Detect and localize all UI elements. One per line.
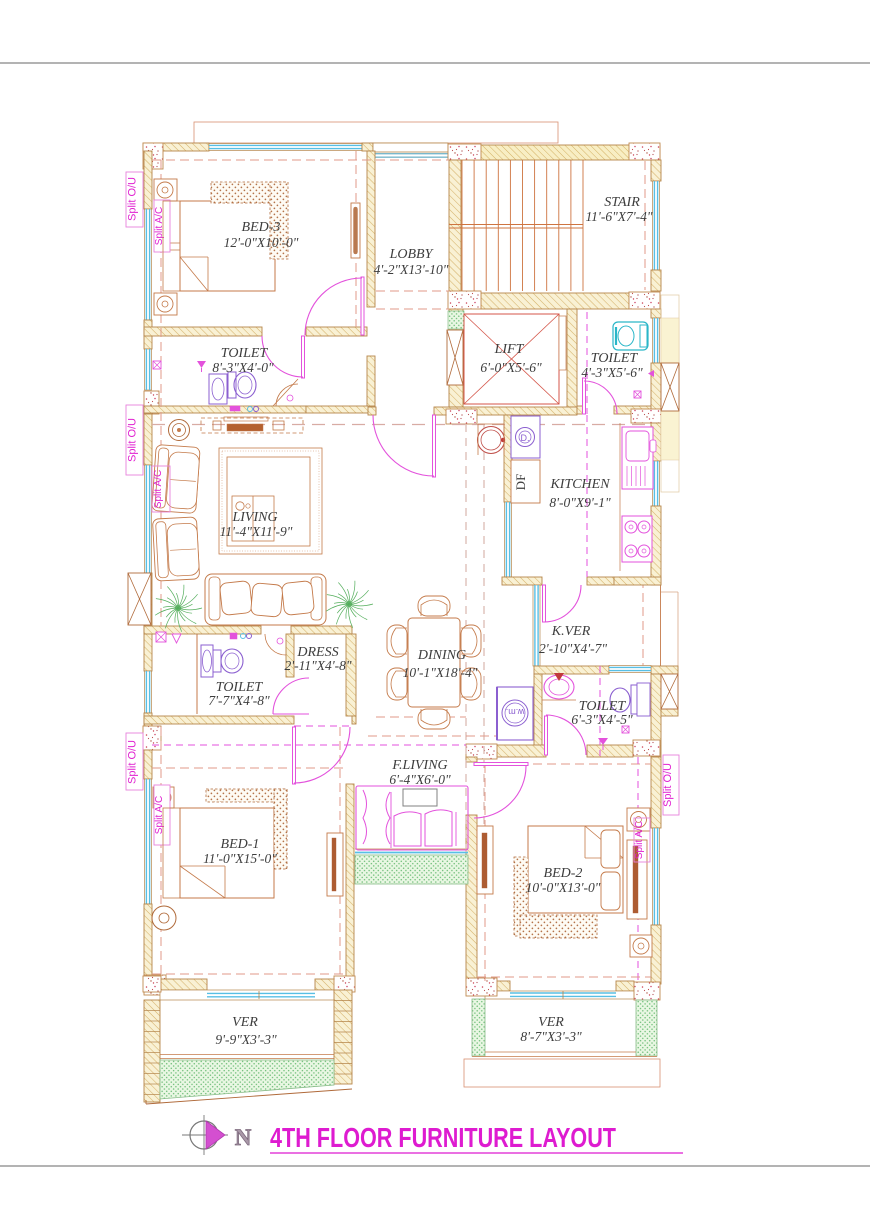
svg-text:8'-0"X9'-1": 8'-0"X9'-1" — [549, 495, 611, 510]
svg-text:Split O/U: Split O/U — [662, 763, 674, 807]
svg-text:LIVING: LIVING — [231, 510, 277, 525]
svg-text:11'-0"X15'-0": 11'-0"X15'-0" — [203, 851, 277, 866]
svg-text:11'-4"X11'-9": 11'-4"X11'-9" — [220, 524, 293, 539]
svg-text:VER: VER — [538, 1015, 564, 1030]
svg-text:DINING: DINING — [417, 648, 466, 663]
svg-text:2'-11"X4'-8": 2'-11"X4'-8" — [284, 658, 351, 673]
svg-text:LIFT: LIFT — [494, 342, 525, 357]
svg-text:6'-3"X4'-5": 6'-3"X4'-5" — [571, 712, 633, 727]
svg-text:Split O/U: Split O/U — [127, 177, 139, 221]
svg-text:12'-0"X10'-0": 12'-0"X10'-0" — [224, 235, 299, 250]
svg-text:Split O/U: Split O/U — [127, 740, 139, 784]
svg-text:Split A/C: Split A/C — [634, 821, 645, 859]
svg-text:11'-6"X7'-4": 11'-6"X7'-4" — [585, 209, 652, 224]
svg-text:4'-3"X5'-6": 4'-3"X5'-6" — [581, 365, 643, 380]
svg-text:2'-10"X4'-7": 2'-10"X4'-7" — [539, 641, 607, 656]
svg-text:8'-7"X3'-3": 8'-7"X3'-3" — [520, 1029, 582, 1044]
svg-text:VER: VER — [232, 1015, 258, 1030]
svg-text:6'-4"X6'-0": 6'-4"X6'-0" — [389, 772, 451, 787]
svg-text:F.LIVING: F.LIVING — [391, 758, 447, 773]
svg-text:BED-1: BED-1 — [221, 837, 260, 852]
svg-text:STAIR: STAIR — [604, 195, 640, 210]
svg-text:w.m.: w.m. — [506, 707, 526, 717]
svg-text:TOILET: TOILET — [221, 346, 269, 361]
svg-text:7'-7"X4'-8": 7'-7"X4'-8" — [208, 693, 270, 708]
svg-text:LOBBY: LOBBY — [389, 247, 435, 262]
svg-text:DF: DF — [513, 474, 528, 491]
svg-text:9'-9"X3'-3": 9'-9"X3'-3" — [215, 1032, 277, 1047]
svg-text:4'-2"X13'-10": 4'-2"X13'-10" — [374, 262, 449, 277]
svg-text:BED-2: BED-2 — [544, 866, 583, 881]
svg-text:K.VER: K.VER — [551, 624, 591, 639]
svg-text:8'-3"X4'-0": 8'-3"X4'-0" — [212, 360, 274, 375]
svg-text:4TH FLOOR FURNITURE LAYOUT: 4TH FLOOR FURNITURE LAYOUT — [270, 1122, 616, 1153]
svg-text:6'-0"X5'-6": 6'-0"X5'-6" — [480, 360, 542, 375]
svg-text:D.: D. — [521, 433, 530, 443]
svg-text:BED-3: BED-3 — [242, 220, 281, 235]
svg-text:10'-0"X13'-0": 10'-0"X13'-0" — [526, 880, 601, 895]
svg-text:TOILET: TOILET — [591, 351, 639, 366]
svg-text:N: N — [235, 1125, 252, 1150]
svg-text:Split A/C: Split A/C — [153, 470, 164, 508]
svg-text:Split O/U: Split O/U — [127, 418, 139, 462]
svg-text:10'-1"X18'-4": 10'-1"X18'-4" — [403, 665, 478, 680]
svg-text:KITCHEN: KITCHEN — [549, 477, 610, 492]
